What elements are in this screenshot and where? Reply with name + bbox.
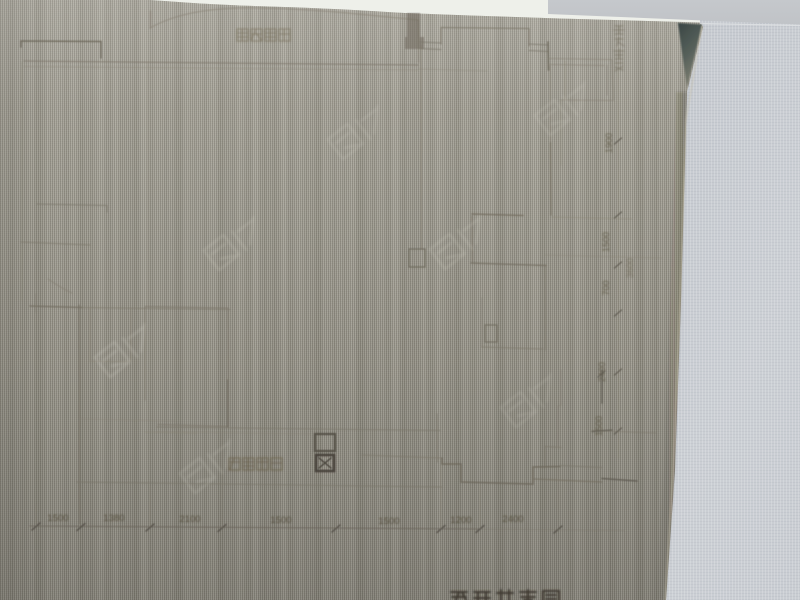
svg-text:1500: 1500	[594, 416, 604, 436]
svg-text:1500: 1500	[270, 515, 291, 526]
svg-text:1380: 1380	[103, 513, 124, 524]
svg-text:2100: 2100	[179, 514, 200, 525]
svg-text:1200: 1200	[450, 515, 471, 526]
svg-text:1900: 1900	[604, 133, 614, 153]
svg-text:1500: 1500	[601, 232, 611, 252]
svg-text:700: 700	[601, 280, 611, 295]
svg-text:1500: 1500	[47, 513, 68, 524]
svg-text:2400: 2400	[502, 514, 523, 525]
svg-text:1500: 1500	[378, 516, 399, 527]
svg-text:3600: 3600	[625, 258, 635, 278]
